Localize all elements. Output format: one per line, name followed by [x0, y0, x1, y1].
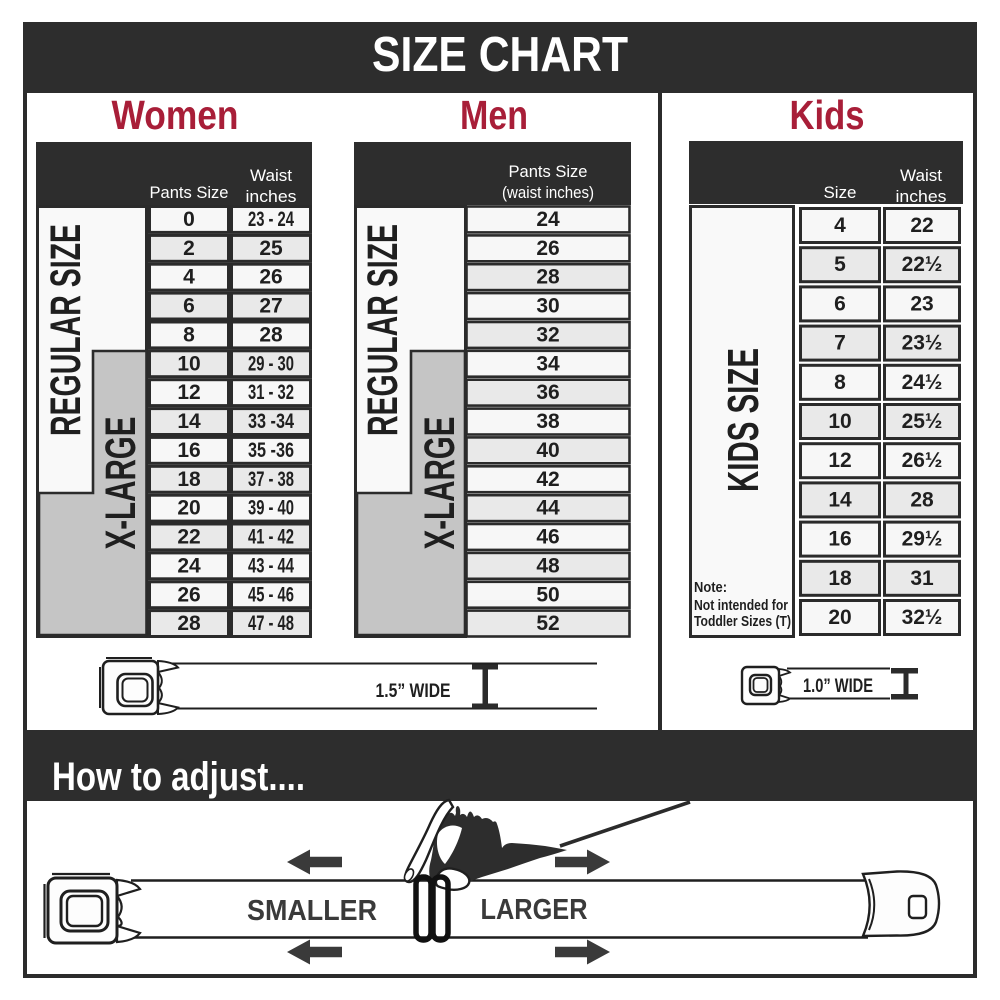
svg-text:32½: 32½	[902, 606, 943, 629]
svg-text:6: 6	[834, 292, 846, 315]
svg-text:REGULAR SIZE: REGULAR SIZE	[359, 224, 407, 436]
svg-text:10: 10	[177, 352, 200, 375]
svg-text:inches: inches	[246, 187, 297, 206]
svg-text:31 - 32: 31 - 32	[248, 381, 294, 404]
svg-text:40: 40	[536, 439, 559, 462]
svg-text:31: 31	[910, 567, 934, 590]
svg-text:23½: 23½	[902, 332, 943, 355]
svg-text:12: 12	[828, 449, 851, 472]
svg-text:30: 30	[536, 295, 559, 318]
svg-text:18: 18	[177, 468, 201, 491]
svg-text:16: 16	[177, 439, 200, 462]
svg-text:0: 0	[183, 208, 195, 231]
svg-text:26½: 26½	[902, 449, 943, 472]
svg-text:inches: inches	[896, 187, 947, 206]
svg-text:5: 5	[834, 253, 846, 276]
svg-text:Waist: Waist	[900, 166, 942, 185]
svg-text:36: 36	[536, 381, 559, 404]
svg-text:41 - 42: 41 - 42	[248, 526, 294, 549]
svg-text:Size: Size	[824, 183, 857, 202]
svg-text:43 - 44: 43 - 44	[248, 554, 294, 577]
svg-text:26: 26	[259, 266, 282, 289]
svg-text:6: 6	[183, 295, 195, 318]
svg-text:22½: 22½	[902, 253, 943, 276]
svg-text:22: 22	[910, 214, 933, 237]
svg-text:52: 52	[536, 612, 559, 635]
svg-text:47 - 48: 47 - 48	[248, 612, 294, 635]
svg-text:44: 44	[536, 497, 560, 520]
svg-text:28: 28	[910, 488, 934, 511]
svg-text:4: 4	[183, 266, 195, 289]
svg-text:14: 14	[177, 410, 201, 433]
svg-text:4: 4	[834, 214, 846, 237]
svg-text:25: 25	[259, 237, 283, 260]
svg-text:24½: 24½	[902, 371, 943, 394]
svg-text:SIZE CHART: SIZE CHART	[372, 28, 628, 82]
svg-text:29½: 29½	[902, 528, 943, 551]
svg-text:Waist: Waist	[250, 166, 292, 185]
svg-text:Note:: Note:	[694, 579, 727, 596]
svg-text:18: 18	[828, 567, 852, 590]
svg-text:24: 24	[536, 208, 560, 231]
svg-text:2: 2	[183, 237, 195, 260]
svg-text:How to adjust....: How to adjust....	[52, 755, 305, 799]
svg-text:26: 26	[177, 583, 200, 606]
svg-text:22: 22	[177, 526, 200, 549]
svg-text:LARGER: LARGER	[481, 894, 588, 926]
svg-text:SMALLER: SMALLER	[247, 895, 377, 927]
svg-text:1.0” WIDE: 1.0” WIDE	[803, 676, 873, 697]
svg-text:8: 8	[834, 371, 846, 394]
svg-text:34: 34	[536, 352, 560, 375]
svg-text:20: 20	[177, 497, 200, 520]
svg-text:KIDS SIZE: KIDS SIZE	[719, 348, 768, 492]
svg-text:35 -36: 35 -36	[248, 439, 294, 462]
svg-text:Men: Men	[460, 92, 528, 138]
svg-text:28: 28	[259, 324, 283, 347]
svg-text:8: 8	[183, 324, 195, 347]
svg-text:27: 27	[259, 295, 282, 318]
svg-text:38: 38	[536, 410, 560, 433]
svg-text:REGULAR SIZE: REGULAR SIZE	[42, 224, 90, 436]
svg-text:23: 23	[910, 292, 933, 315]
svg-text:37 - 38: 37 - 38	[248, 468, 294, 491]
svg-text:50: 50	[536, 583, 559, 606]
svg-text:25½: 25½	[902, 410, 943, 433]
svg-text:29 - 30: 29 - 30	[248, 352, 294, 375]
svg-text:10: 10	[828, 410, 851, 433]
svg-text:26: 26	[536, 237, 559, 260]
svg-text:Pants Size: Pants Size	[509, 162, 588, 181]
svg-text:48: 48	[536, 554, 560, 577]
svg-text:Pants Size: Pants Size	[150, 183, 229, 202]
svg-text:42: 42	[536, 468, 559, 491]
svg-text:45 - 46: 45 - 46	[248, 583, 294, 606]
svg-text:28: 28	[536, 266, 560, 289]
svg-text:Not intended for: Not intended for	[694, 597, 788, 614]
svg-text:7: 7	[834, 332, 846, 355]
svg-text:32: 32	[536, 324, 559, 347]
svg-text:20: 20	[828, 606, 851, 629]
svg-text:Women: Women	[112, 92, 239, 138]
svg-text:16: 16	[828, 528, 851, 551]
svg-text:12: 12	[177, 381, 200, 404]
svg-text:(waist inches): (waist inches)	[502, 183, 594, 202]
svg-text:Toddler Sizes (T): Toddler Sizes (T)	[694, 613, 791, 630]
svg-text:28: 28	[177, 612, 201, 635]
svg-text:1.5” WIDE: 1.5” WIDE	[376, 681, 451, 702]
svg-text:24: 24	[177, 554, 201, 577]
svg-text:X-LARGE: X-LARGE	[97, 417, 145, 550]
svg-text:46: 46	[536, 526, 559, 549]
svg-text:23 - 24: 23 - 24	[248, 208, 294, 231]
svg-text:14: 14	[828, 488, 852, 511]
svg-text:X-LARGE: X-LARGE	[416, 417, 464, 550]
svg-text:Kids: Kids	[790, 92, 865, 138]
svg-text:33 -34: 33 -34	[248, 410, 294, 433]
svg-text:39 - 40: 39 - 40	[248, 497, 294, 520]
